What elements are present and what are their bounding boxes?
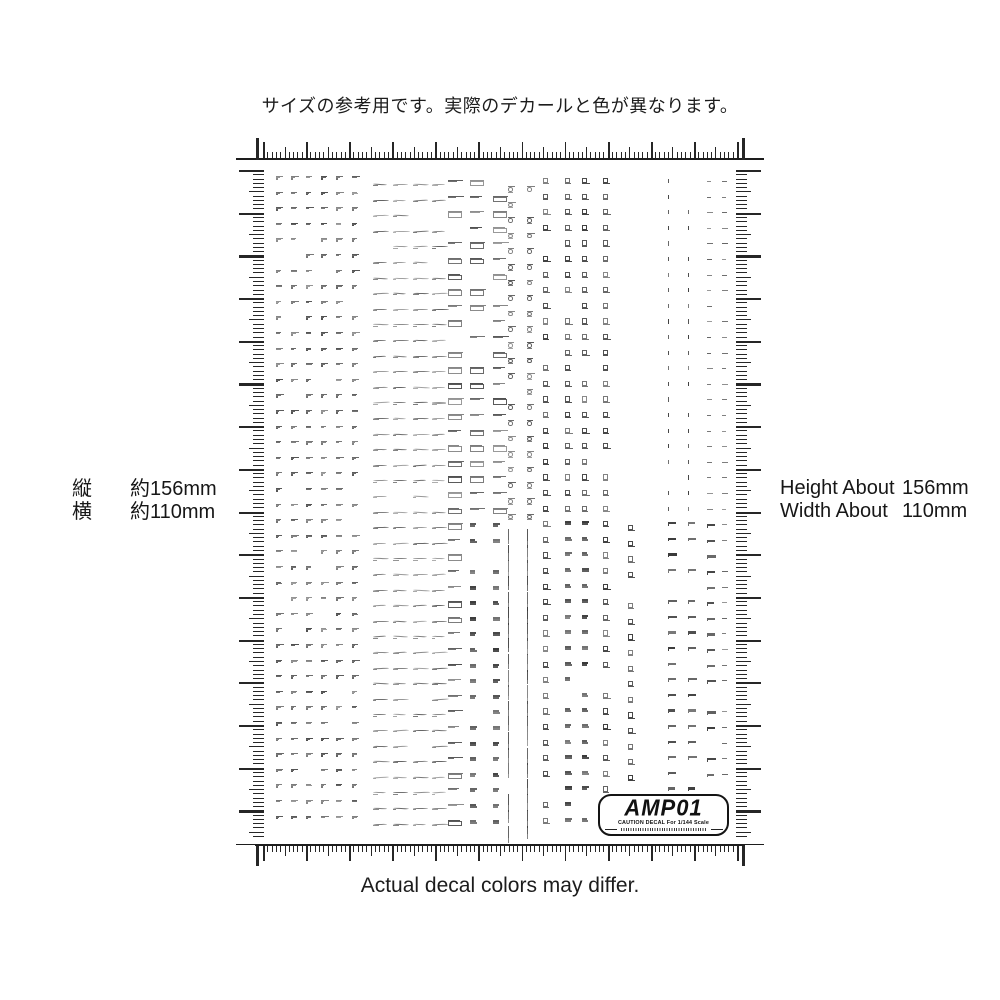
decal-mark bbox=[306, 285, 316, 297]
ruler-tick bbox=[328, 846, 329, 856]
decal-mark bbox=[393, 683, 410, 695]
decal-mark bbox=[603, 521, 617, 533]
decal-mark bbox=[565, 615, 579, 627]
decal-mark bbox=[373, 668, 390, 680]
decal-mark bbox=[543, 194, 557, 206]
decal-mark bbox=[603, 646, 617, 658]
decal-mark bbox=[321, 285, 331, 297]
decal-mark bbox=[470, 196, 487, 208]
decal-mark bbox=[493, 508, 506, 520]
decal-mark bbox=[565, 662, 579, 674]
decal-mark bbox=[493, 586, 506, 598]
ruler-tick bbox=[603, 846, 604, 852]
decal-mark bbox=[508, 576, 521, 588]
decal-mark bbox=[707, 493, 716, 505]
decal-mark bbox=[393, 824, 410, 836]
decal-mark bbox=[276, 550, 286, 562]
decal-mark bbox=[493, 258, 506, 270]
height-label-en: Height About bbox=[780, 477, 902, 500]
ruler-tick bbox=[474, 846, 475, 852]
ruler-tick bbox=[371, 846, 372, 856]
decal-mark bbox=[582, 786, 596, 798]
decal-mark bbox=[291, 769, 301, 781]
ruler-tick bbox=[698, 846, 699, 852]
decal-mark bbox=[413, 449, 430, 461]
decal-mark bbox=[527, 514, 540, 526]
decal-mark bbox=[707, 384, 716, 396]
decal-mark bbox=[688, 647, 701, 659]
decal-mark bbox=[352, 816, 362, 828]
decal-mark bbox=[393, 231, 410, 243]
decal-mark bbox=[448, 305, 465, 317]
decal-mark bbox=[628, 385, 649, 397]
decal-mark bbox=[628, 198, 649, 210]
decal-mark bbox=[373, 621, 390, 633]
ruler-tick bbox=[504, 846, 505, 852]
decal-mark bbox=[413, 652, 430, 664]
decal-mark bbox=[543, 428, 557, 440]
ruler-tick bbox=[517, 846, 518, 852]
decal-mark bbox=[668, 429, 681, 441]
ruler-tick bbox=[487, 846, 488, 852]
ruler-tick bbox=[582, 152, 583, 159]
decal-mark bbox=[603, 740, 617, 752]
decal-mark bbox=[448, 430, 465, 442]
ruler-tick bbox=[418, 152, 419, 159]
decal-mark bbox=[582, 818, 596, 830]
ruler-tick bbox=[655, 152, 656, 159]
decal-mark bbox=[668, 756, 681, 768]
decal-mark bbox=[668, 725, 681, 737]
decal-mark bbox=[336, 207, 346, 219]
decal-mark bbox=[493, 742, 506, 754]
decal-mark bbox=[432, 668, 449, 680]
decal-mark bbox=[393, 449, 410, 461]
ruler-tick bbox=[491, 152, 492, 159]
decal-mark bbox=[582, 256, 596, 268]
ruler-tick bbox=[345, 846, 346, 852]
ruler-tick bbox=[638, 846, 639, 852]
ruler-tick bbox=[478, 846, 480, 861]
decal-mark bbox=[393, 699, 410, 711]
ruler-tick bbox=[603, 152, 604, 159]
decal-mark bbox=[373, 746, 390, 758]
ruler-tick bbox=[629, 846, 630, 856]
decal-mark bbox=[722, 259, 731, 271]
ruler-tick bbox=[690, 152, 691, 159]
decal-mark bbox=[628, 354, 649, 366]
decal-mark bbox=[508, 248, 521, 260]
decal-mark bbox=[527, 217, 540, 229]
ruler-tick bbox=[647, 846, 648, 852]
decal-mark bbox=[565, 350, 579, 362]
decal-mark bbox=[432, 293, 449, 305]
ruler-tick bbox=[315, 846, 316, 852]
decal-mark bbox=[276, 316, 286, 328]
decal-mark bbox=[603, 599, 617, 611]
decal-mark bbox=[306, 800, 316, 812]
decal-mark bbox=[603, 552, 617, 564]
ruler-tick bbox=[608, 142, 610, 158]
decal-mark bbox=[373, 761, 390, 773]
decal-mark bbox=[527, 482, 540, 494]
ruler-tick bbox=[655, 846, 656, 852]
decal-mark bbox=[527, 264, 540, 276]
decal-mark bbox=[373, 683, 390, 695]
decal-mark bbox=[582, 521, 596, 533]
decal-mark bbox=[527, 436, 540, 448]
decal-mark bbox=[373, 480, 390, 492]
decal-mark bbox=[306, 488, 316, 500]
ruler-tick bbox=[578, 846, 579, 852]
decal-mark bbox=[543, 568, 557, 580]
decal-mark bbox=[413, 309, 430, 321]
ruler-tick bbox=[453, 152, 454, 159]
ruler-tick bbox=[513, 152, 514, 159]
ruler-stub bbox=[745, 844, 764, 845]
decal-mark bbox=[707, 587, 716, 599]
decal-mark bbox=[393, 200, 410, 212]
decal-mark bbox=[413, 824, 430, 836]
decal-mark bbox=[688, 273, 701, 285]
decal-mark bbox=[688, 475, 701, 487]
decal-mark bbox=[432, 231, 449, 243]
decal-mark bbox=[352, 207, 362, 219]
ruler-tick bbox=[552, 152, 553, 159]
decal-mark bbox=[508, 592, 521, 604]
decal-mark bbox=[291, 582, 301, 594]
decal-mark bbox=[543, 287, 557, 299]
decal-mark bbox=[543, 755, 557, 767]
decal-mark bbox=[306, 363, 316, 375]
decal-mark bbox=[603, 225, 617, 237]
decal-mark bbox=[707, 259, 716, 271]
decal-mark bbox=[291, 613, 301, 625]
decal-mark bbox=[543, 506, 557, 518]
decal-mark bbox=[291, 535, 301, 547]
decal-mark bbox=[543, 677, 557, 689]
decal-mark bbox=[628, 619, 649, 631]
decal-mark bbox=[470, 367, 487, 379]
decal-mark bbox=[543, 537, 557, 549]
decal-mark bbox=[321, 535, 331, 547]
decal-mark bbox=[668, 772, 681, 784]
decal-mark bbox=[276, 379, 286, 391]
decal-mark bbox=[413, 356, 430, 368]
ruler-tick bbox=[616, 846, 617, 852]
decal-mark bbox=[668, 195, 681, 207]
ruler-tick bbox=[457, 846, 458, 856]
decal-mark bbox=[393, 278, 410, 290]
decal-mark bbox=[373, 808, 390, 820]
decal-mark bbox=[527, 326, 540, 338]
decal-mark bbox=[707, 680, 716, 692]
ruler-tick bbox=[638, 152, 639, 159]
decal-mark bbox=[527, 576, 540, 588]
ruler-tick bbox=[556, 152, 557, 159]
ruler-tick bbox=[539, 152, 540, 159]
decal-mark bbox=[565, 552, 579, 564]
decal-mark bbox=[448, 742, 465, 754]
decal-mark bbox=[321, 332, 331, 344]
decal-mark bbox=[448, 523, 465, 535]
decal-mark bbox=[448, 632, 465, 644]
decal-mark bbox=[373, 200, 390, 212]
decal-mark bbox=[291, 566, 301, 578]
decal-mark bbox=[493, 211, 506, 223]
decal-mark bbox=[707, 618, 716, 630]
decal-mark bbox=[276, 722, 286, 734]
ruler-tick bbox=[569, 846, 570, 852]
decal-mark bbox=[336, 363, 346, 375]
decal-mark bbox=[373, 371, 390, 383]
decal-mark bbox=[413, 605, 430, 617]
decal-mark bbox=[413, 808, 430, 820]
ruler-tick bbox=[366, 152, 367, 159]
decal-mark bbox=[582, 708, 596, 720]
decal-mark bbox=[603, 708, 617, 720]
decal-mark bbox=[306, 691, 316, 703]
decal-mark bbox=[668, 179, 681, 191]
ruler-tick bbox=[306, 846, 308, 861]
decal-mark bbox=[393, 340, 410, 352]
decal-mark bbox=[393, 730, 410, 742]
decal-mark bbox=[336, 675, 346, 687]
decal-mark bbox=[493, 336, 506, 348]
decal-mark bbox=[291, 238, 301, 250]
ruler-tick bbox=[293, 846, 294, 852]
decal-mark bbox=[276, 675, 286, 687]
decal-mark bbox=[336, 238, 346, 250]
decal-mark bbox=[470, 242, 487, 254]
decal-mark bbox=[393, 668, 410, 680]
decal-mark bbox=[373, 418, 390, 430]
decal-mark bbox=[470, 773, 487, 785]
decal-mark bbox=[493, 539, 506, 551]
decal-mark bbox=[306, 784, 316, 796]
ruler-tick bbox=[698, 152, 699, 159]
decal-mark bbox=[352, 706, 362, 718]
decal-mark bbox=[448, 258, 465, 270]
decal-mark bbox=[413, 418, 430, 430]
decal-mark bbox=[306, 472, 316, 484]
decal-mark bbox=[321, 441, 331, 453]
decal-mark bbox=[527, 420, 540, 432]
decal-mark bbox=[470, 695, 487, 707]
ruler-tick bbox=[392, 142, 394, 158]
decal-mark bbox=[628, 478, 649, 490]
decal-mark bbox=[493, 632, 506, 644]
decal-mark bbox=[603, 287, 617, 299]
decal-mark bbox=[543, 693, 557, 705]
decal-mark bbox=[291, 753, 301, 765]
decal-mark bbox=[603, 194, 617, 206]
ruler-tick bbox=[297, 152, 298, 159]
decal-mark bbox=[722, 462, 731, 474]
decal-mark bbox=[543, 474, 557, 486]
decal-mark bbox=[373, 605, 390, 617]
decal-mark bbox=[291, 379, 301, 391]
decal-mark bbox=[306, 535, 316, 547]
decal-mark bbox=[336, 332, 346, 344]
ruler-tick bbox=[694, 846, 696, 861]
decal-mark bbox=[565, 724, 579, 736]
decal-mark bbox=[565, 459, 579, 471]
decal-mark bbox=[527, 404, 540, 416]
ruler-tick bbox=[642, 846, 643, 852]
decal-mark bbox=[565, 708, 579, 720]
decal-mark bbox=[432, 246, 449, 258]
ruler-tick bbox=[629, 147, 630, 158]
decal-mark bbox=[276, 566, 286, 578]
decal-mark bbox=[493, 305, 506, 317]
decal-mark bbox=[543, 584, 557, 596]
decal-mark bbox=[432, 543, 449, 555]
decal-mark bbox=[448, 679, 465, 691]
decal-mark bbox=[393, 777, 410, 789]
ruler-tick bbox=[496, 846, 497, 852]
decal-mark bbox=[336, 192, 346, 204]
decal-mark bbox=[413, 558, 430, 570]
decal-mark bbox=[352, 691, 362, 703]
decal-mark bbox=[448, 617, 465, 629]
decal-mark bbox=[413, 246, 430, 258]
decal-mark bbox=[582, 630, 596, 642]
decal-mark bbox=[668, 273, 681, 285]
decal-mark bbox=[527, 295, 540, 307]
decal-mark bbox=[722, 665, 731, 677]
decal-mark bbox=[722, 633, 731, 645]
decal-mark bbox=[527, 732, 540, 744]
decal-mark bbox=[291, 285, 301, 297]
decal-mark bbox=[688, 288, 701, 300]
decal-mark bbox=[321, 784, 331, 796]
decal-mark bbox=[352, 285, 362, 297]
decal-mark bbox=[603, 412, 617, 424]
decal-mark bbox=[291, 332, 301, 344]
ruler-tick bbox=[647, 152, 648, 159]
decal-mark bbox=[306, 379, 316, 391]
decal-mark bbox=[565, 443, 579, 455]
decal-mark bbox=[628, 291, 649, 303]
decal-mark bbox=[543, 256, 557, 268]
ruler-tick bbox=[522, 846, 524, 861]
decal-mark bbox=[373, 449, 390, 461]
decal-mark bbox=[276, 426, 286, 438]
decal-mark bbox=[413, 683, 430, 695]
ruler-tick bbox=[388, 846, 389, 852]
decal-mark bbox=[527, 560, 540, 572]
ruler-tick bbox=[733, 846, 734, 852]
decal-mark bbox=[432, 434, 449, 446]
ruler-tick bbox=[280, 846, 281, 852]
decal-mark bbox=[291, 410, 301, 422]
decal-mark bbox=[470, 398, 487, 410]
ruler-tick bbox=[677, 846, 678, 852]
decal-mark bbox=[448, 383, 465, 395]
decal-mark bbox=[336, 254, 346, 266]
size-labels-english: Height About 156mm Width About 110mm bbox=[780, 477, 972, 523]
decal-mark bbox=[276, 784, 286, 796]
decal-mark bbox=[493, 804, 506, 816]
decal-mark bbox=[291, 176, 301, 188]
ruler-tick bbox=[681, 846, 682, 852]
decal-mark bbox=[321, 691, 331, 703]
decal-mark bbox=[582, 396, 596, 408]
top-caption-japanese: サイズの参考用です。実際のデカールと色が異なります。 bbox=[0, 92, 1000, 118]
ruler-tick bbox=[737, 846, 739, 861]
decal-mark bbox=[508, 280, 521, 292]
decal-mark bbox=[527, 342, 540, 354]
decal-mark bbox=[413, 324, 430, 336]
decal-mark bbox=[291, 441, 301, 453]
ruler-tick bbox=[405, 152, 406, 159]
decal-mark bbox=[543, 818, 557, 830]
decal-mark bbox=[527, 748, 540, 760]
decal-mark bbox=[432, 340, 449, 352]
decal-mark bbox=[688, 382, 701, 394]
decal-mark bbox=[603, 256, 617, 268]
decal-mark bbox=[508, 358, 521, 370]
decal-mark bbox=[306, 316, 316, 328]
ruler-tick bbox=[539, 846, 540, 852]
decal-mark bbox=[413, 527, 430, 539]
decal-mark bbox=[448, 726, 465, 738]
decal-mark bbox=[668, 210, 681, 222]
decal-mark bbox=[688, 210, 701, 222]
decal-mark bbox=[582, 740, 596, 752]
decal-mark bbox=[493, 788, 506, 800]
decal-mark bbox=[527, 763, 540, 775]
decal-mark bbox=[493, 679, 506, 691]
width-label-row-en: Width About 110mm bbox=[780, 500, 972, 523]
ruler-tick bbox=[448, 846, 449, 852]
decal-mark bbox=[688, 491, 701, 503]
ruler-tick bbox=[401, 152, 402, 159]
decal-mark bbox=[628, 712, 649, 724]
ruler-tick bbox=[435, 142, 437, 158]
decal-mark bbox=[432, 683, 449, 695]
decal-mark bbox=[352, 550, 362, 562]
decal-mark bbox=[432, 402, 449, 414]
decal-mark bbox=[413, 636, 430, 648]
decal-mark bbox=[582, 225, 596, 237]
decal-mark bbox=[668, 366, 681, 378]
decal-mark bbox=[276, 800, 286, 812]
decal-mark bbox=[470, 414, 487, 426]
decal-mark bbox=[527, 311, 540, 323]
decal-mark bbox=[352, 472, 362, 484]
ruler-tick bbox=[642, 152, 643, 159]
decal-mark bbox=[582, 646, 596, 658]
ruler-tick bbox=[612, 846, 613, 852]
decal-mark bbox=[628, 494, 649, 506]
decal-mark bbox=[306, 332, 316, 344]
decal-mark bbox=[393, 402, 410, 414]
decal-mark bbox=[276, 410, 286, 422]
decal-mark bbox=[352, 254, 362, 266]
decal-mark bbox=[527, 654, 540, 666]
ruler-tick bbox=[728, 846, 729, 852]
decal-mark bbox=[603, 771, 617, 783]
decal-mark bbox=[291, 675, 301, 687]
decal-mark bbox=[306, 816, 316, 828]
decal-mark bbox=[352, 238, 362, 250]
decal-mark bbox=[291, 816, 301, 828]
ruler-tick bbox=[466, 846, 467, 852]
decal-mark bbox=[582, 662, 596, 674]
decal-mark bbox=[352, 223, 362, 235]
